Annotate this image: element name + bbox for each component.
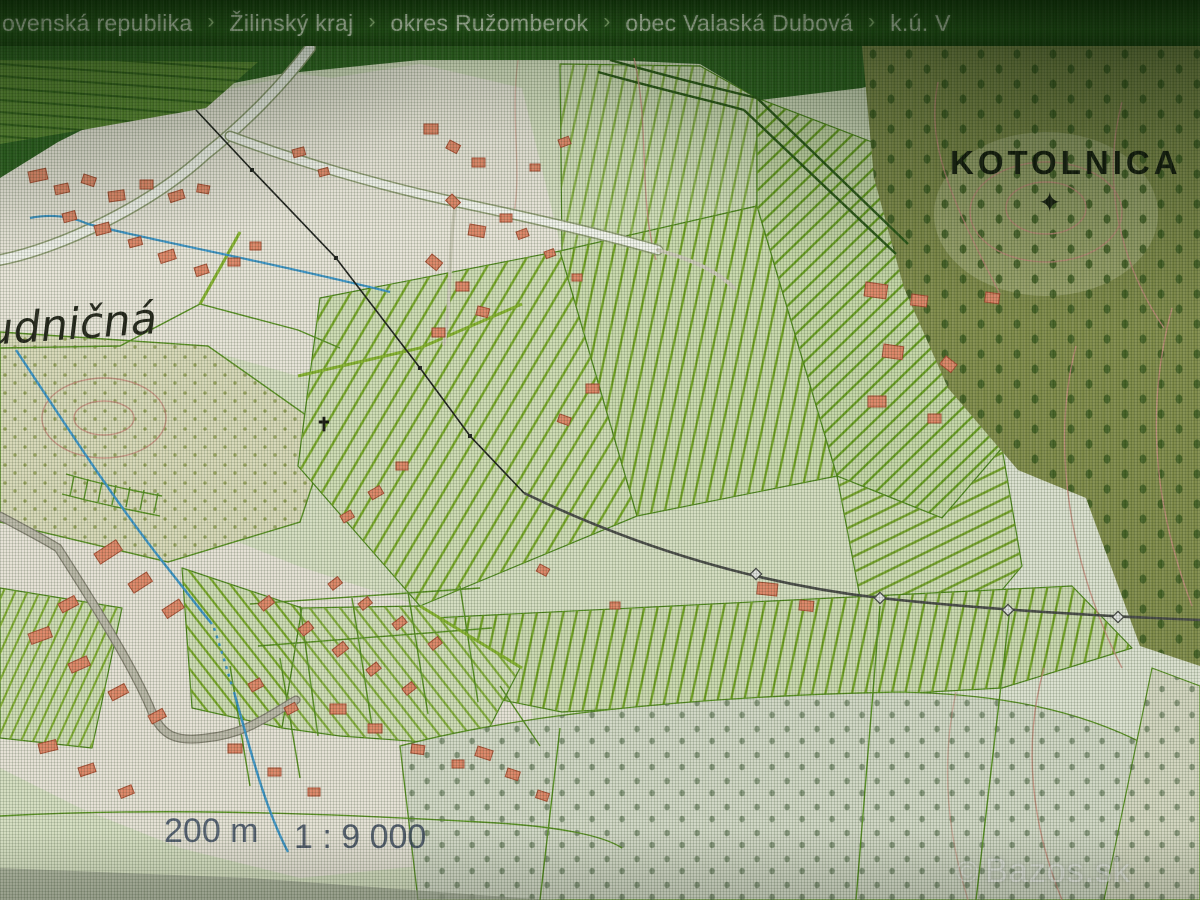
chevron-separator-icon: ›: [369, 10, 376, 34]
map-canvas: [0, 46, 1200, 900]
breadcrumb-item-district[interactable]: okres Ružomberok: [391, 10, 589, 37]
breadcrumb-item-municipality[interactable]: obec Valaská Dubová: [625, 10, 853, 37]
chevron-separator-icon: ›: [868, 10, 875, 34]
chevron-separator-icon: ›: [208, 10, 215, 34]
breadcrumb-item-state[interactable]: ovenská republika: [2, 10, 193, 37]
breadcrumb: ovenská republika › Žilinský kraj › okre…: [0, 0, 1200, 46]
screen-photo: ovenská republika › Žilinský kraj › okre…: [0, 0, 1200, 900]
chevron-separator-icon: ›: [603, 10, 610, 34]
breadcrumb-item-cadastre[interactable]: k.ú. V: [890, 10, 951, 37]
map-viewport[interactable]: udničná KOTOLNICA ✦ ✝ 200 m 1 : 9 000 ©B…: [0, 46, 1200, 900]
breadcrumb-item-region[interactable]: Žilinský kraj: [230, 10, 354, 37]
